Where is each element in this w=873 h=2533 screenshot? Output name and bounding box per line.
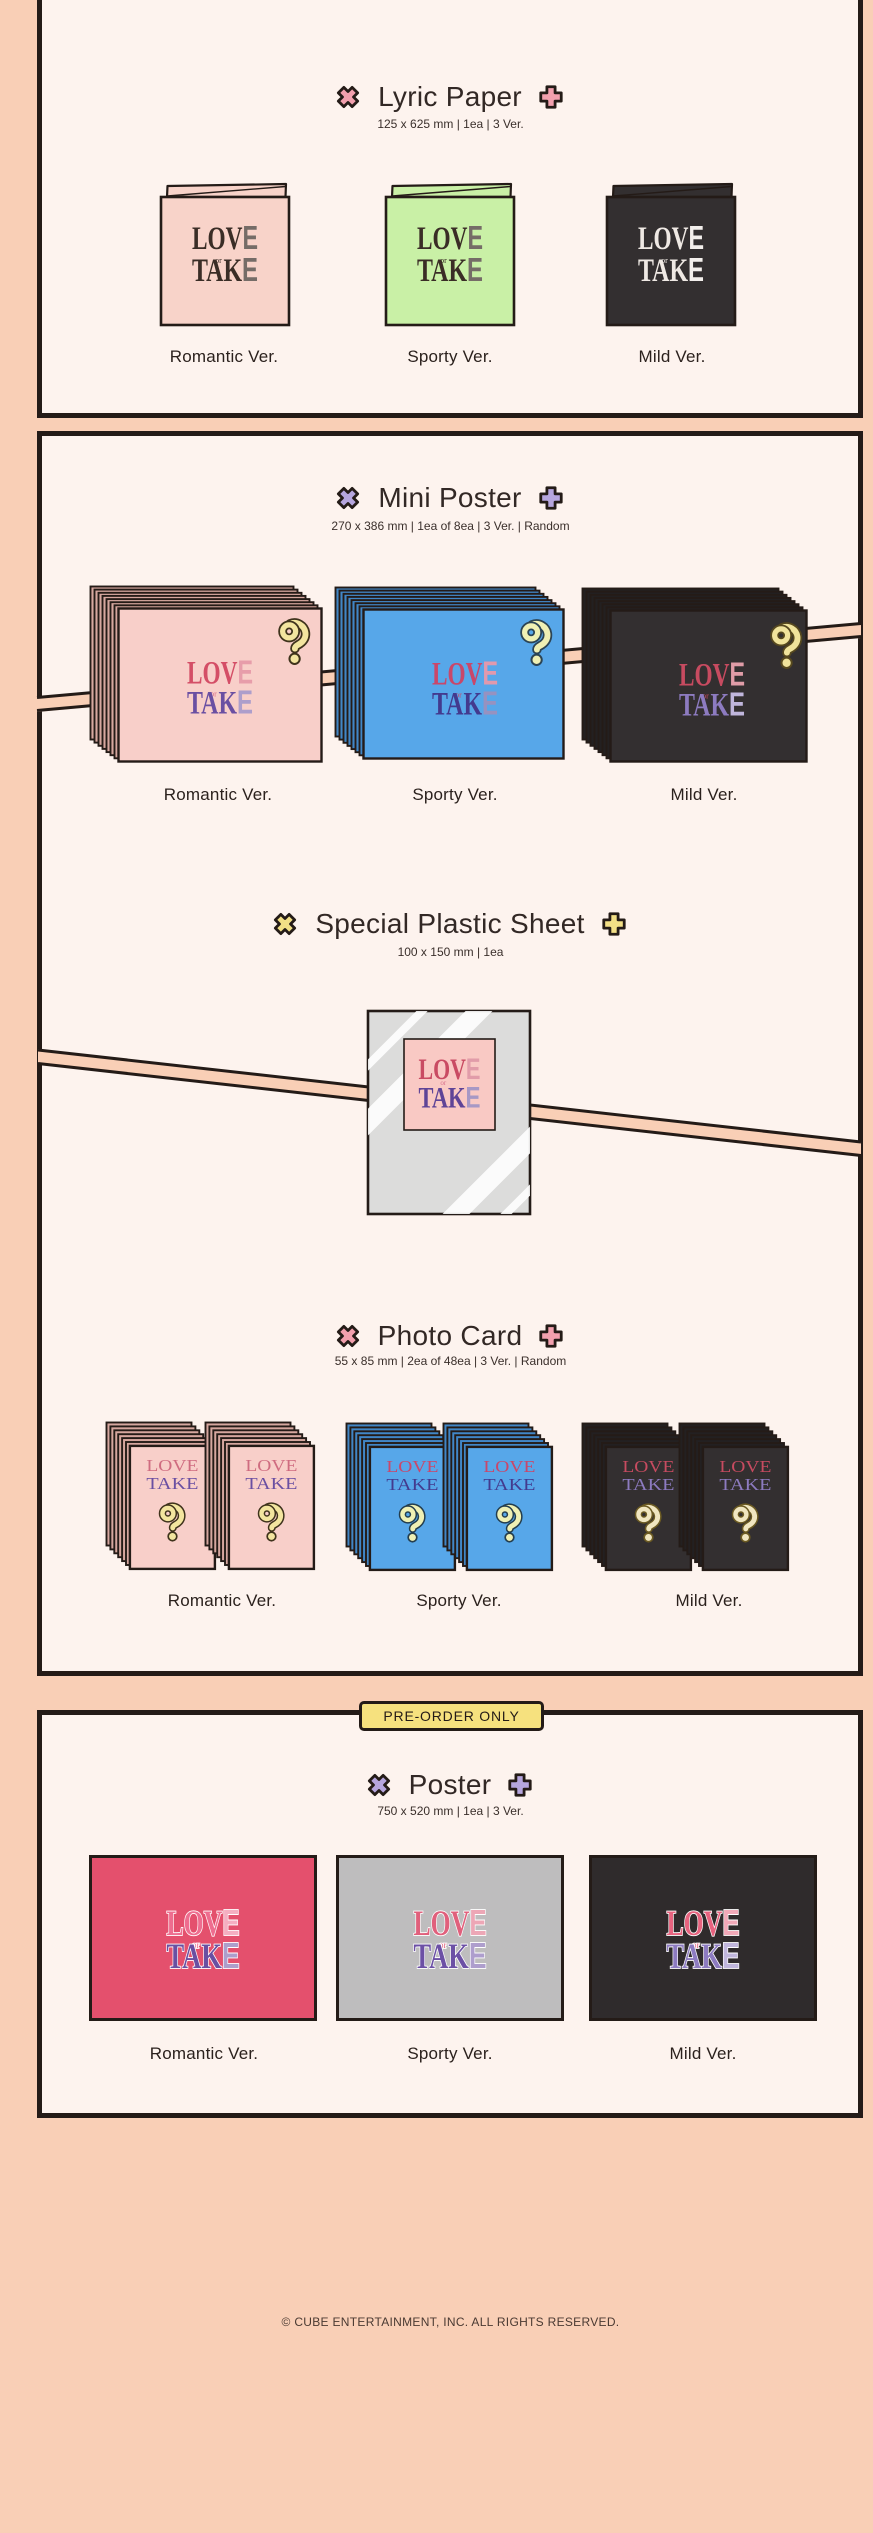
svg-text:TAKE: TAKE [187,683,253,721]
svg-text:LOVE: LOVE [483,1457,535,1476]
svg-text:TAKE: TAKE [146,1474,198,1493]
svg-text:TAKE: TAKE [167,1935,240,1976]
svg-text:LOVE: LOVE [245,1456,297,1475]
svg-text:TAKE: TAKE [192,251,258,289]
svg-text:TAKE: TAKE [679,685,745,723]
svg-text:TAKE: TAKE [414,1935,487,1976]
svg-text:LOVE: LOVE [386,1457,438,1476]
svg-text:TAKE: TAKE [432,684,498,722]
svg-text:TAKE: TAKE [667,1935,740,1976]
svg-text:LOVE: LOVE [622,1457,674,1476]
svg-text:TAKE: TAKE [622,1475,674,1494]
svg-text:TAKE: TAKE [419,1082,481,1115]
svg-text:LOVE: LOVE [719,1457,771,1476]
svg-text:LOVE: LOVE [146,1456,198,1475]
svg-text:TAKE: TAKE [417,251,483,289]
svg-text:TAKE: TAKE [245,1474,297,1493]
svg-text:TAKE: TAKE [386,1475,438,1494]
svg-text:TAKE: TAKE [638,251,704,289]
svg-text:TAKE: TAKE [719,1475,771,1494]
svg-text:TAKE: TAKE [483,1475,535,1494]
